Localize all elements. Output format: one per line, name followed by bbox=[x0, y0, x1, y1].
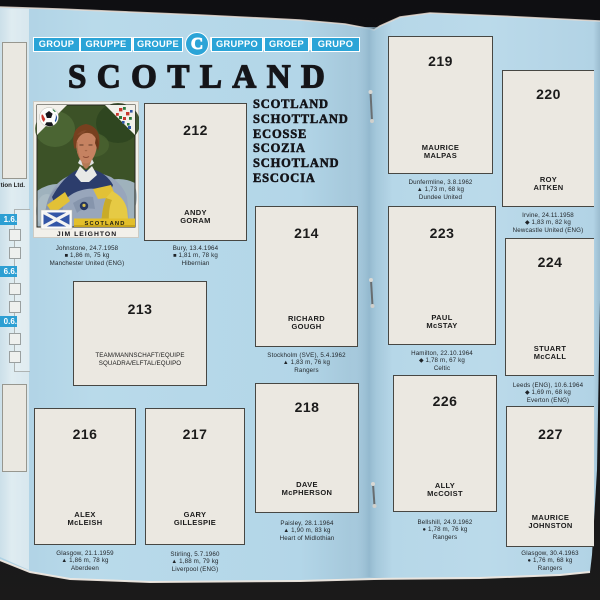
svg-text:JIM LEIGHTON: JIM LEIGHTON bbox=[57, 231, 117, 238]
svg-text:SCOTLAND: SCOTLAND bbox=[84, 221, 125, 227]
